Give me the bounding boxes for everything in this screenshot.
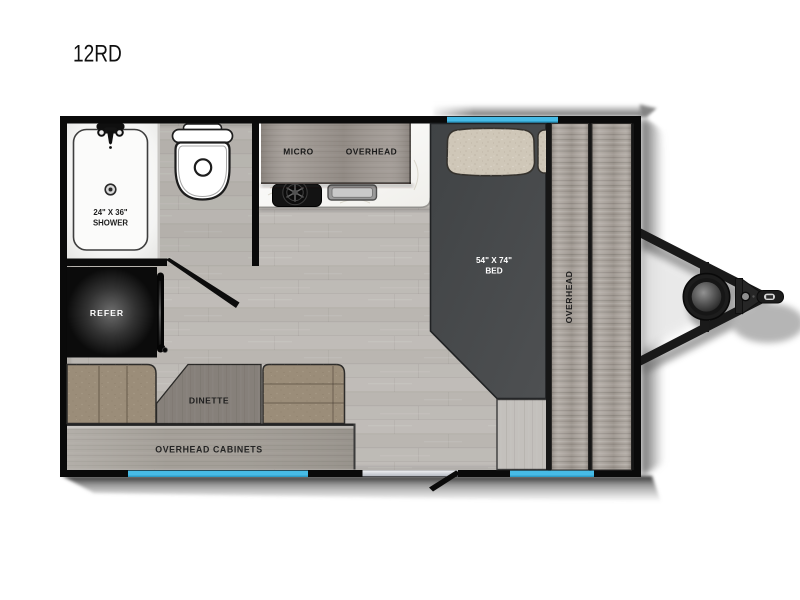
svg-text:MICRO: MICRO [283, 147, 313, 157]
svg-text:24" X 36": 24" X 36" [93, 208, 128, 217]
svg-text:OVERHEAD: OVERHEAD [564, 271, 574, 324]
svg-text:SHOWER: SHOWER [93, 219, 128, 228]
svg-text:REFER: REFER [90, 308, 124, 318]
svg-text:12RD: 12RD [73, 39, 122, 67]
svg-text:DINETTE: DINETTE [189, 396, 229, 406]
svg-text:BED: BED [485, 267, 502, 276]
svg-text:OVERHEAD CABINETS: OVERHEAD CABINETS [155, 445, 262, 455]
svg-text:54" X 74": 54" X 74" [476, 256, 512, 265]
svg-text:OVERHEAD: OVERHEAD [346, 147, 397, 157]
